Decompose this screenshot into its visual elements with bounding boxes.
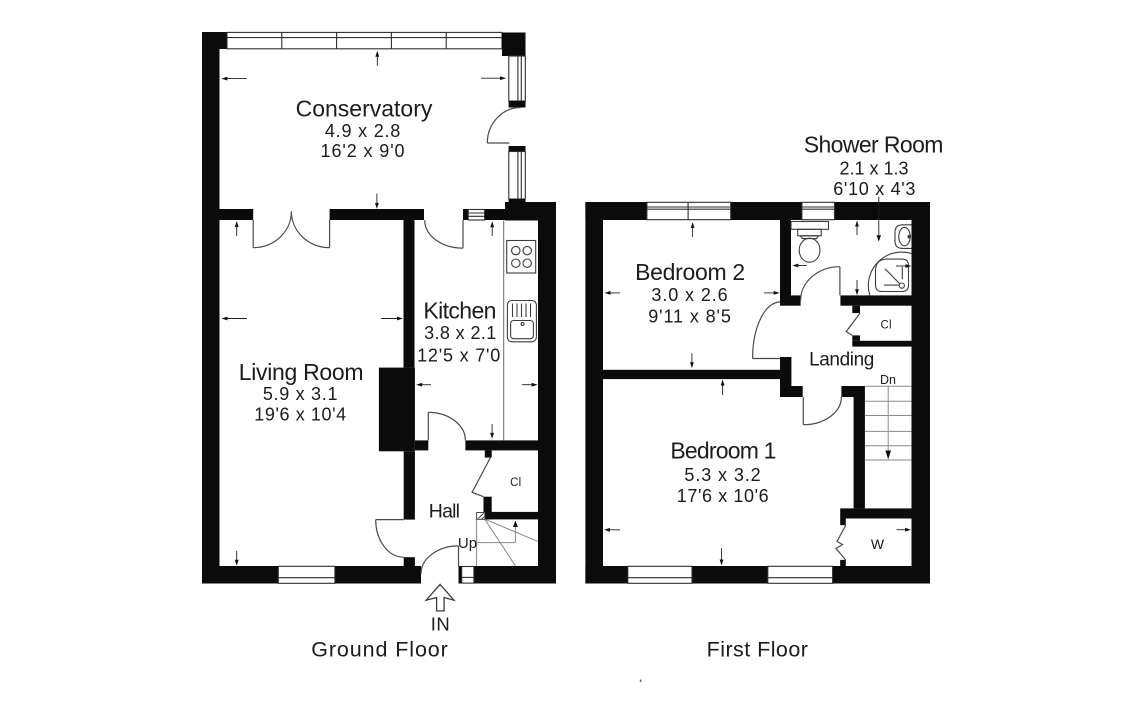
svg-text:5.9 x 3.1: 5.9 x 3.1 — [263, 384, 338, 404]
svg-text:Conservatory: Conservatory — [296, 95, 433, 121]
svg-text:6'10 x 4'3: 6'10 x 4'3 — [833, 179, 916, 199]
svg-text:Kitchen: Kitchen — [423, 298, 496, 324]
svg-text:4.9 x 2.8: 4.9 x 2.8 — [325, 121, 401, 141]
svg-text:9'11 x 8'5: 9'11 x 8'5 — [648, 307, 732, 327]
svg-text:5.3 x 3.2: 5.3 x 3.2 — [684, 465, 761, 485]
svg-text:Up: Up — [458, 535, 477, 552]
svg-text:Hall: Hall — [429, 501, 460, 523]
svg-text:Shower Room: Shower Room — [804, 132, 943, 158]
svg-text:Cl: Cl — [880, 319, 891, 331]
svg-text:Landing: Landing — [809, 349, 874, 370]
svg-text:12'5 x 7'0: 12'5 x 7'0 — [417, 346, 501, 366]
svg-text:Cl: Cl — [510, 477, 521, 489]
svg-text:2.1 x 1.3: 2.1 x 1.3 — [839, 158, 908, 178]
svg-text:Ground Floor: Ground Floor — [311, 638, 448, 662]
svg-text:3.0 x 2.6: 3.0 x 2.6 — [651, 285, 728, 305]
svg-text:First Floor: First Floor — [707, 638, 809, 662]
svg-text:19'6 x 10'4: 19'6 x 10'4 — [254, 404, 347, 424]
svg-text:W: W — [871, 536, 885, 552]
svg-text:Bedroom 1: Bedroom 1 — [670, 438, 775, 464]
svg-text:IN: IN — [431, 613, 451, 634]
svg-text:Bedroom 2: Bedroom 2 — [635, 259, 745, 285]
svg-text:3.8 x 2.1: 3.8 x 2.1 — [424, 323, 497, 343]
svg-text:17'6 x 10'6: 17'6 x 10'6 — [677, 486, 770, 506]
svg-text:Dn: Dn — [880, 373, 896, 387]
svg-text:Living Room: Living Room — [239, 359, 364, 385]
svg-text:16'2 x 9'0: 16'2 x 9'0 — [321, 141, 406, 161]
